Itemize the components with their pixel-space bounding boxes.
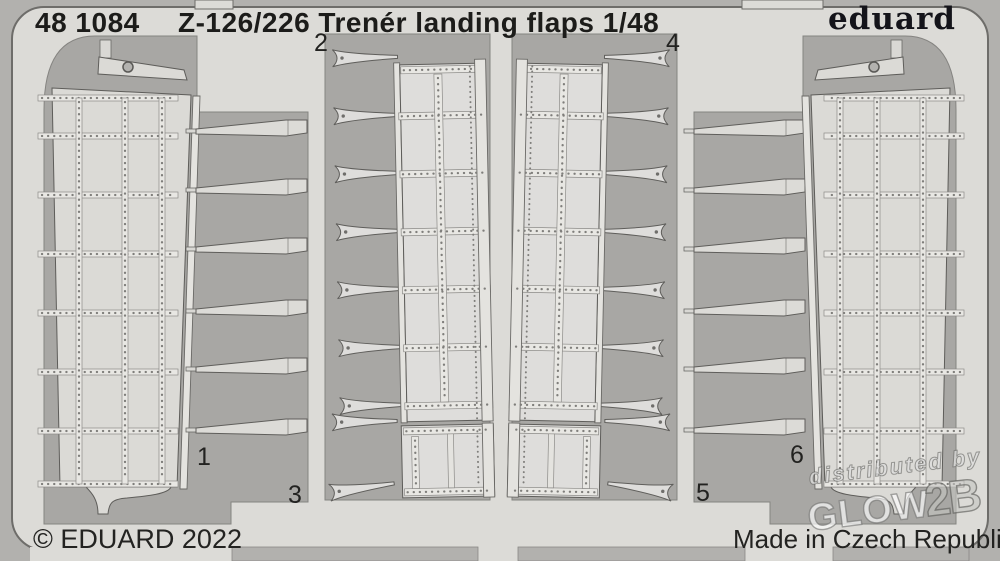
flap-skin-part-right <box>802 40 964 514</box>
glow2b-logo-suffix: 2B <box>922 468 983 526</box>
part-label-5: 5 <box>696 481 710 506</box>
part-label-2: 2 <box>314 31 328 56</box>
part-label-1: 1 <box>197 445 211 470</box>
copyright-text: © EDUARD 2022 <box>33 526 242 553</box>
eduard-pe-fret-photo: 48 1084 Z-126/226 Trenér landing flaps 1… <box>0 0 1000 561</box>
part-label-6: 6 <box>790 443 804 468</box>
sheet-notch <box>518 547 745 561</box>
catalog-number: 48 1084 <box>35 9 140 37</box>
sheet-notch <box>232 547 478 561</box>
part-label-3: 3 <box>288 483 302 508</box>
product-title: Z-126/226 Trenér landing flaps 1/48 <box>178 9 659 37</box>
sheet-tab <box>742 0 823 9</box>
eduard-logo: eduard <box>828 4 956 35</box>
sheet-tab <box>478 547 518 561</box>
part-label-4: 4 <box>666 31 680 56</box>
flap-skin-part-left <box>38 40 200 514</box>
